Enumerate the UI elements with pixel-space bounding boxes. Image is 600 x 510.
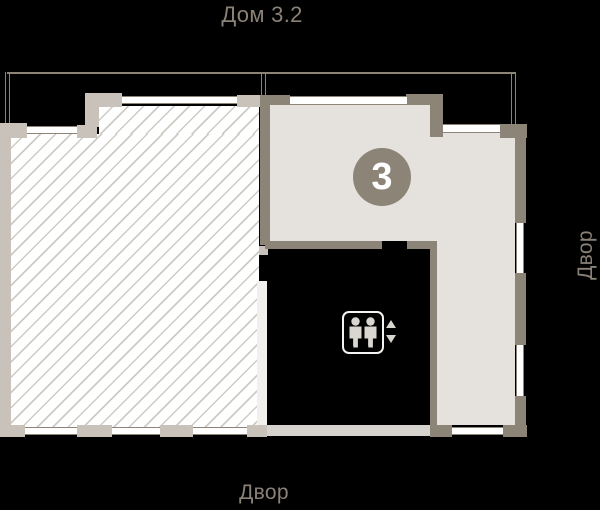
building-title: Дом 3.2: [112, 2, 412, 28]
hatched-apartment-area: [11, 134, 259, 427]
selected-apartment-area[interactable]: [430, 133, 515, 241]
apartment-number-badge[interactable]: 3: [353, 148, 411, 206]
window: [516, 345, 524, 396]
apartment-number: 3: [371, 156, 392, 199]
wall: [406, 94, 443, 105]
outline-left-line: [5, 72, 10, 125]
wall: [85, 93, 122, 107]
courtyard-label-right: Двор: [574, 225, 598, 285]
window: [122, 96, 237, 104]
wall: [430, 105, 443, 137]
window: [25, 427, 77, 435]
wall: [500, 124, 527, 138]
wall: [503, 425, 527, 437]
outline-mid-line: [261, 72, 266, 96]
wall: [0, 123, 11, 437]
elevator-down-icon: [386, 335, 396, 343]
wall: [247, 425, 267, 437]
wall: [0, 123, 27, 138]
wall: [85, 107, 99, 127]
wall: [260, 95, 270, 245]
window: [193, 427, 247, 435]
wall: [515, 138, 526, 223]
wall: [77, 425, 112, 437]
wall: [430, 425, 452, 437]
wall: [265, 241, 382, 249]
wall: [237, 95, 260, 107]
wall: [260, 95, 290, 105]
courtyard-label-bottom: Двор: [114, 481, 414, 505]
window: [27, 126, 77, 134]
window: [112, 427, 160, 435]
wall: [0, 425, 25, 437]
wall: [515, 273, 526, 345]
wall: [160, 425, 193, 437]
window: [443, 124, 500, 133]
wall: [267, 425, 430, 436]
selected-apartment-area[interactable]: [437, 241, 515, 425]
window: [516, 223, 524, 273]
outline-right-line: [511, 72, 516, 125]
floor-plan-widget: Дом 3.2 3: [0, 0, 600, 510]
elevator-icon: [341, 310, 385, 354]
elevator-up-icon: [386, 320, 396, 328]
wall: [430, 241, 437, 425]
window: [452, 427, 503, 435]
hatched-apartment-area: [99, 106, 259, 136]
window: [290, 96, 407, 105]
inner-wall: [257, 281, 267, 427]
